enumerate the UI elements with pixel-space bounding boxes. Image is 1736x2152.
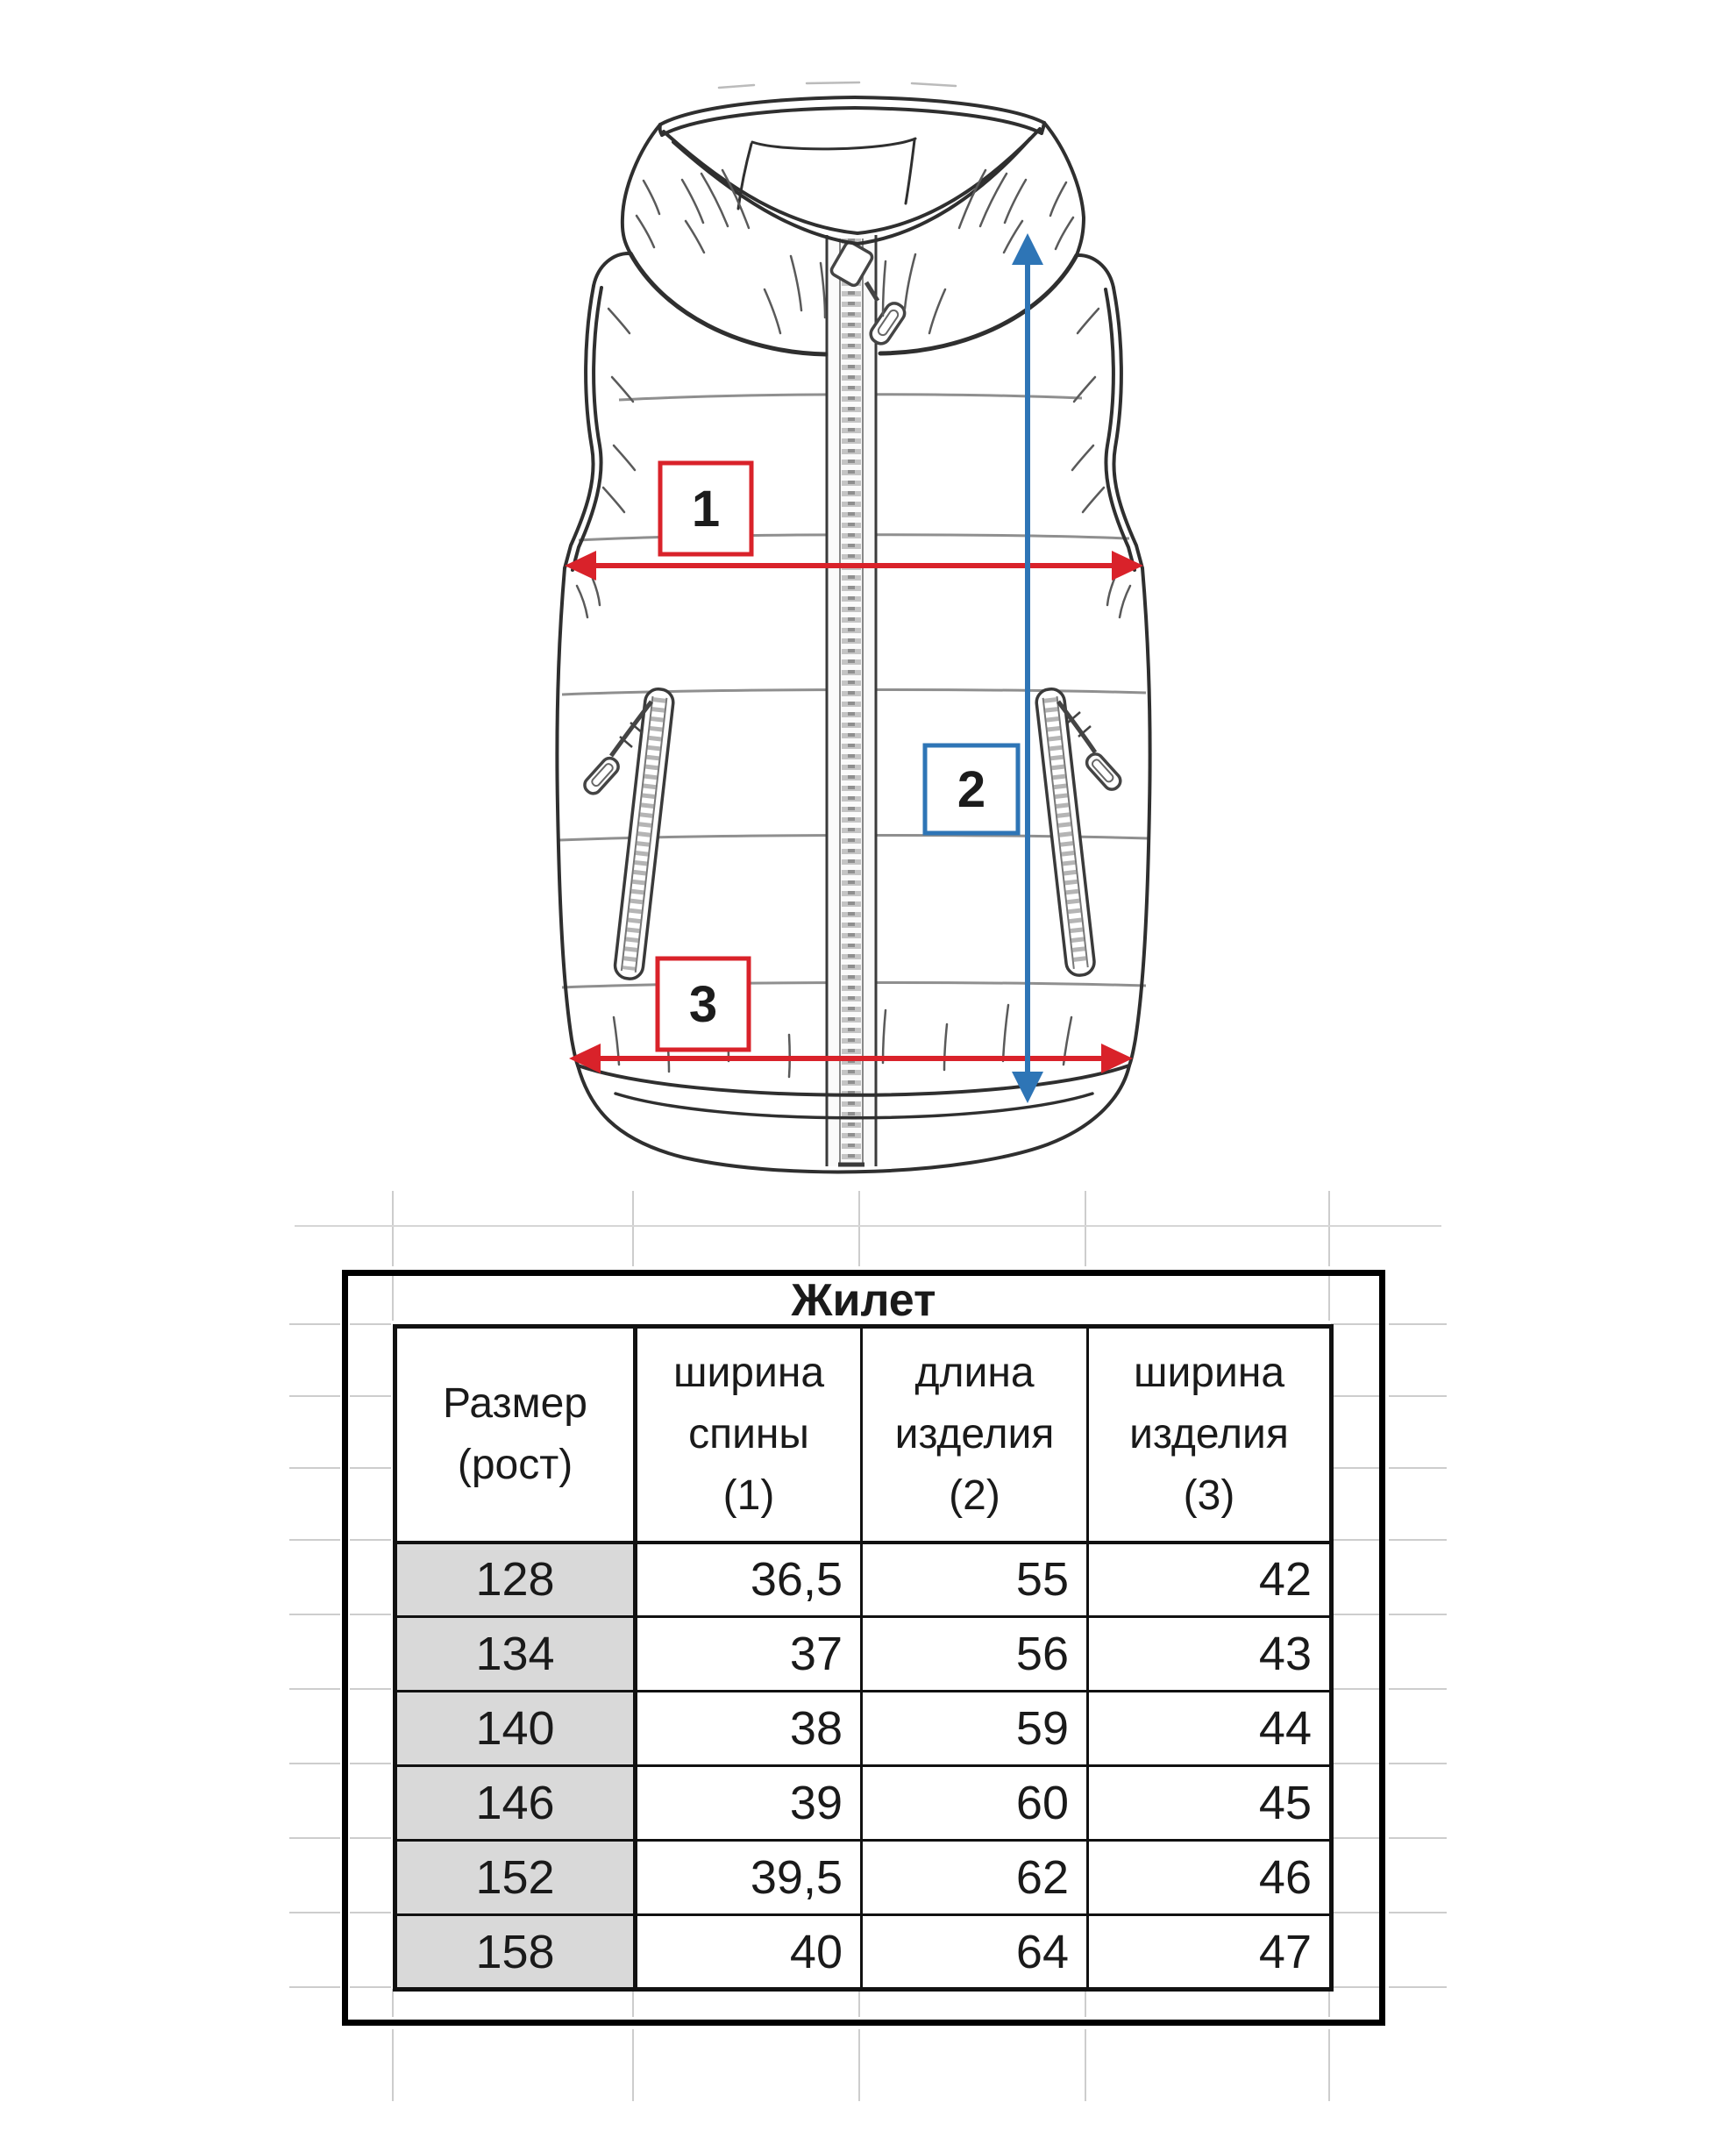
table-row: 146 39 60 45 [395, 1766, 1332, 1841]
cell-size: 158 [395, 1915, 636, 1990]
cell-back-width: 38 [636, 1692, 862, 1766]
cell-length: 56 [862, 1617, 1088, 1692]
cell-length: 64 [862, 1915, 1088, 1990]
cell-item-width: 42 [1088, 1543, 1332, 1617]
right-pocket-zip [1035, 688, 1124, 977]
col-header-length: длина изделия (2) [862, 1327, 1088, 1543]
cell-size: 152 [395, 1841, 636, 1915]
left-pocket-zip [581, 688, 674, 980]
cell-item-width: 44 [1088, 1692, 1332, 1766]
cell-item-width: 45 [1088, 1766, 1332, 1841]
size-table: Размер (рост) ширина спины (1) длина изд… [393, 1324, 1334, 1992]
cell-length: 59 [862, 1692, 1088, 1766]
front-zipper [827, 235, 908, 1166]
cell-item-width: 43 [1088, 1617, 1332, 1692]
cell-back-width: 39,5 [636, 1841, 862, 1915]
marker-1-label: 1 [692, 481, 720, 538]
cell-back-width: 40 [636, 1915, 862, 1990]
length-arrow [1012, 233, 1043, 1103]
marker-3-label: 3 [689, 976, 717, 1033]
col-header-back-width: ширина спины (1) [636, 1327, 862, 1543]
measurement-marker-2: 2 [925, 745, 1018, 833]
cell-size: 146 [395, 1766, 636, 1841]
measurement-marker-3: 3 [658, 958, 749, 1050]
cell-back-width: 39 [636, 1766, 862, 1841]
cell-size: 134 [395, 1617, 636, 1692]
cell-back-width: 37 [636, 1617, 862, 1692]
cell-length: 55 [862, 1543, 1088, 1617]
header-row: Размер (рост) ширина спины (1) длина изд… [395, 1327, 1332, 1543]
cell-length: 62 [862, 1841, 1088, 1915]
measurement-marker-1: 1 [660, 463, 751, 554]
size-table-box: Жилет Размер (рост) ширина спины (1) [342, 1270, 1385, 2026]
col-header-item-width: ширина изделия (3) [1088, 1327, 1332, 1543]
table-title: Жилет [348, 1276, 1379, 1324]
marker-2-label: 2 [957, 761, 985, 818]
table-row: 128 36,5 55 42 [395, 1543, 1332, 1617]
table-row: 140 38 59 44 [395, 1692, 1332, 1766]
col-header-size: Размер (рост) [395, 1327, 636, 1543]
cell-item-width: 47 [1088, 1915, 1332, 1990]
table-row: 152 39,5 62 46 [395, 1841, 1332, 1915]
cell-length: 60 [862, 1766, 1088, 1841]
cell-back-width: 36,5 [636, 1543, 862, 1617]
table-row: 134 37 56 43 [395, 1617, 1332, 1692]
size-guide-page: 1 2 3 Жилет Размер (рост) [0, 0, 1736, 2152]
table-row: 158 40 64 47 [395, 1915, 1332, 1990]
cell-size: 128 [395, 1543, 636, 1617]
cell-item-width: 46 [1088, 1841, 1332, 1915]
cell-size: 140 [395, 1692, 636, 1766]
